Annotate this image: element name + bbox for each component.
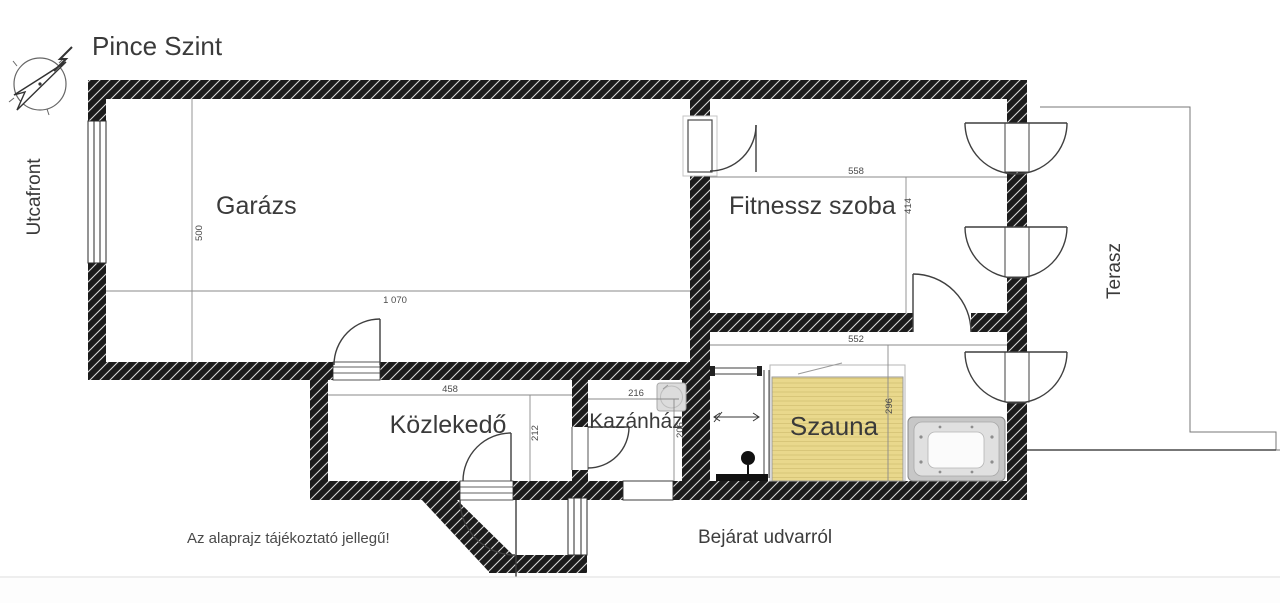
floor-plan-drawing: Pince Szint Utcafront Terasz Garázs Fitn…: [0, 0, 1280, 603]
dim-szauna-height: 296: [884, 398, 895, 414]
boiler-icon: [657, 383, 686, 411]
dim-kazanhaz-height: 206: [675, 422, 686, 438]
dim-fitnessz-width: 558: [848, 166, 864, 177]
room-label-garazs: Garázs: [216, 192, 297, 220]
vestibule-window: [568, 498, 587, 555]
wellness-door: [913, 274, 971, 332]
dim-fitnessz-height: 414: [903, 198, 914, 214]
page-margin: [0, 578, 1280, 603]
plan-note: Az alaprajz tájékoztató jellegű!: [187, 530, 390, 547]
hallway-door: [463, 433, 511, 481]
dim-garazs-height: 500: [194, 225, 205, 241]
dim-szauna-width: 552: [848, 334, 864, 345]
shower: [710, 366, 769, 481]
walls: [88, 80, 1027, 573]
room-label-kozlekedo: Közlekedő: [390, 411, 507, 439]
terrace-door-2: [965, 227, 1067, 278]
hallway-exit-threshold: [460, 481, 513, 500]
room-label-fitnessz: Fitnessz szoba: [729, 192, 896, 220]
street-side-label: Utcafront: [24, 158, 45, 236]
garage-hallway-door: [334, 319, 380, 365]
garage-door-threshold: [333, 362, 380, 380]
dim-kozlekedo-width: 458: [442, 384, 458, 395]
terrace-door-1: [965, 123, 1067, 174]
room-label-kazanhaz: Kazánház: [589, 410, 682, 433]
jacuzzi-icon: [908, 417, 1005, 481]
fitness-door: [683, 116, 756, 176]
shower-head-icon: [741, 451, 755, 465]
terrace-door-3: [965, 352, 1067, 403]
entrance-label: Bejárat udvarról: [698, 527, 832, 548]
boiler-room-door: [572, 427, 629, 470]
room-label-szauna: Szauna: [790, 411, 879, 441]
dim-kozlekedo-height: 212: [530, 425, 541, 441]
garage-window: [88, 121, 106, 263]
floor-plan-canvas: Pince Szint Utcafront Terasz Garázs Fitn…: [0, 0, 1280, 603]
page-title: Pince Szint: [92, 31, 223, 61]
compass-north-icon: [9, 47, 72, 115]
dim-kazanhaz-width: 216: [628, 388, 644, 399]
shower-drain: [716, 474, 768, 481]
dim-garazs-width: 1 070: [383, 295, 407, 306]
terrace-label: Terasz: [1104, 243, 1125, 299]
terrace-outline: [1027, 107, 1280, 450]
boiler-room-window: [623, 481, 673, 500]
